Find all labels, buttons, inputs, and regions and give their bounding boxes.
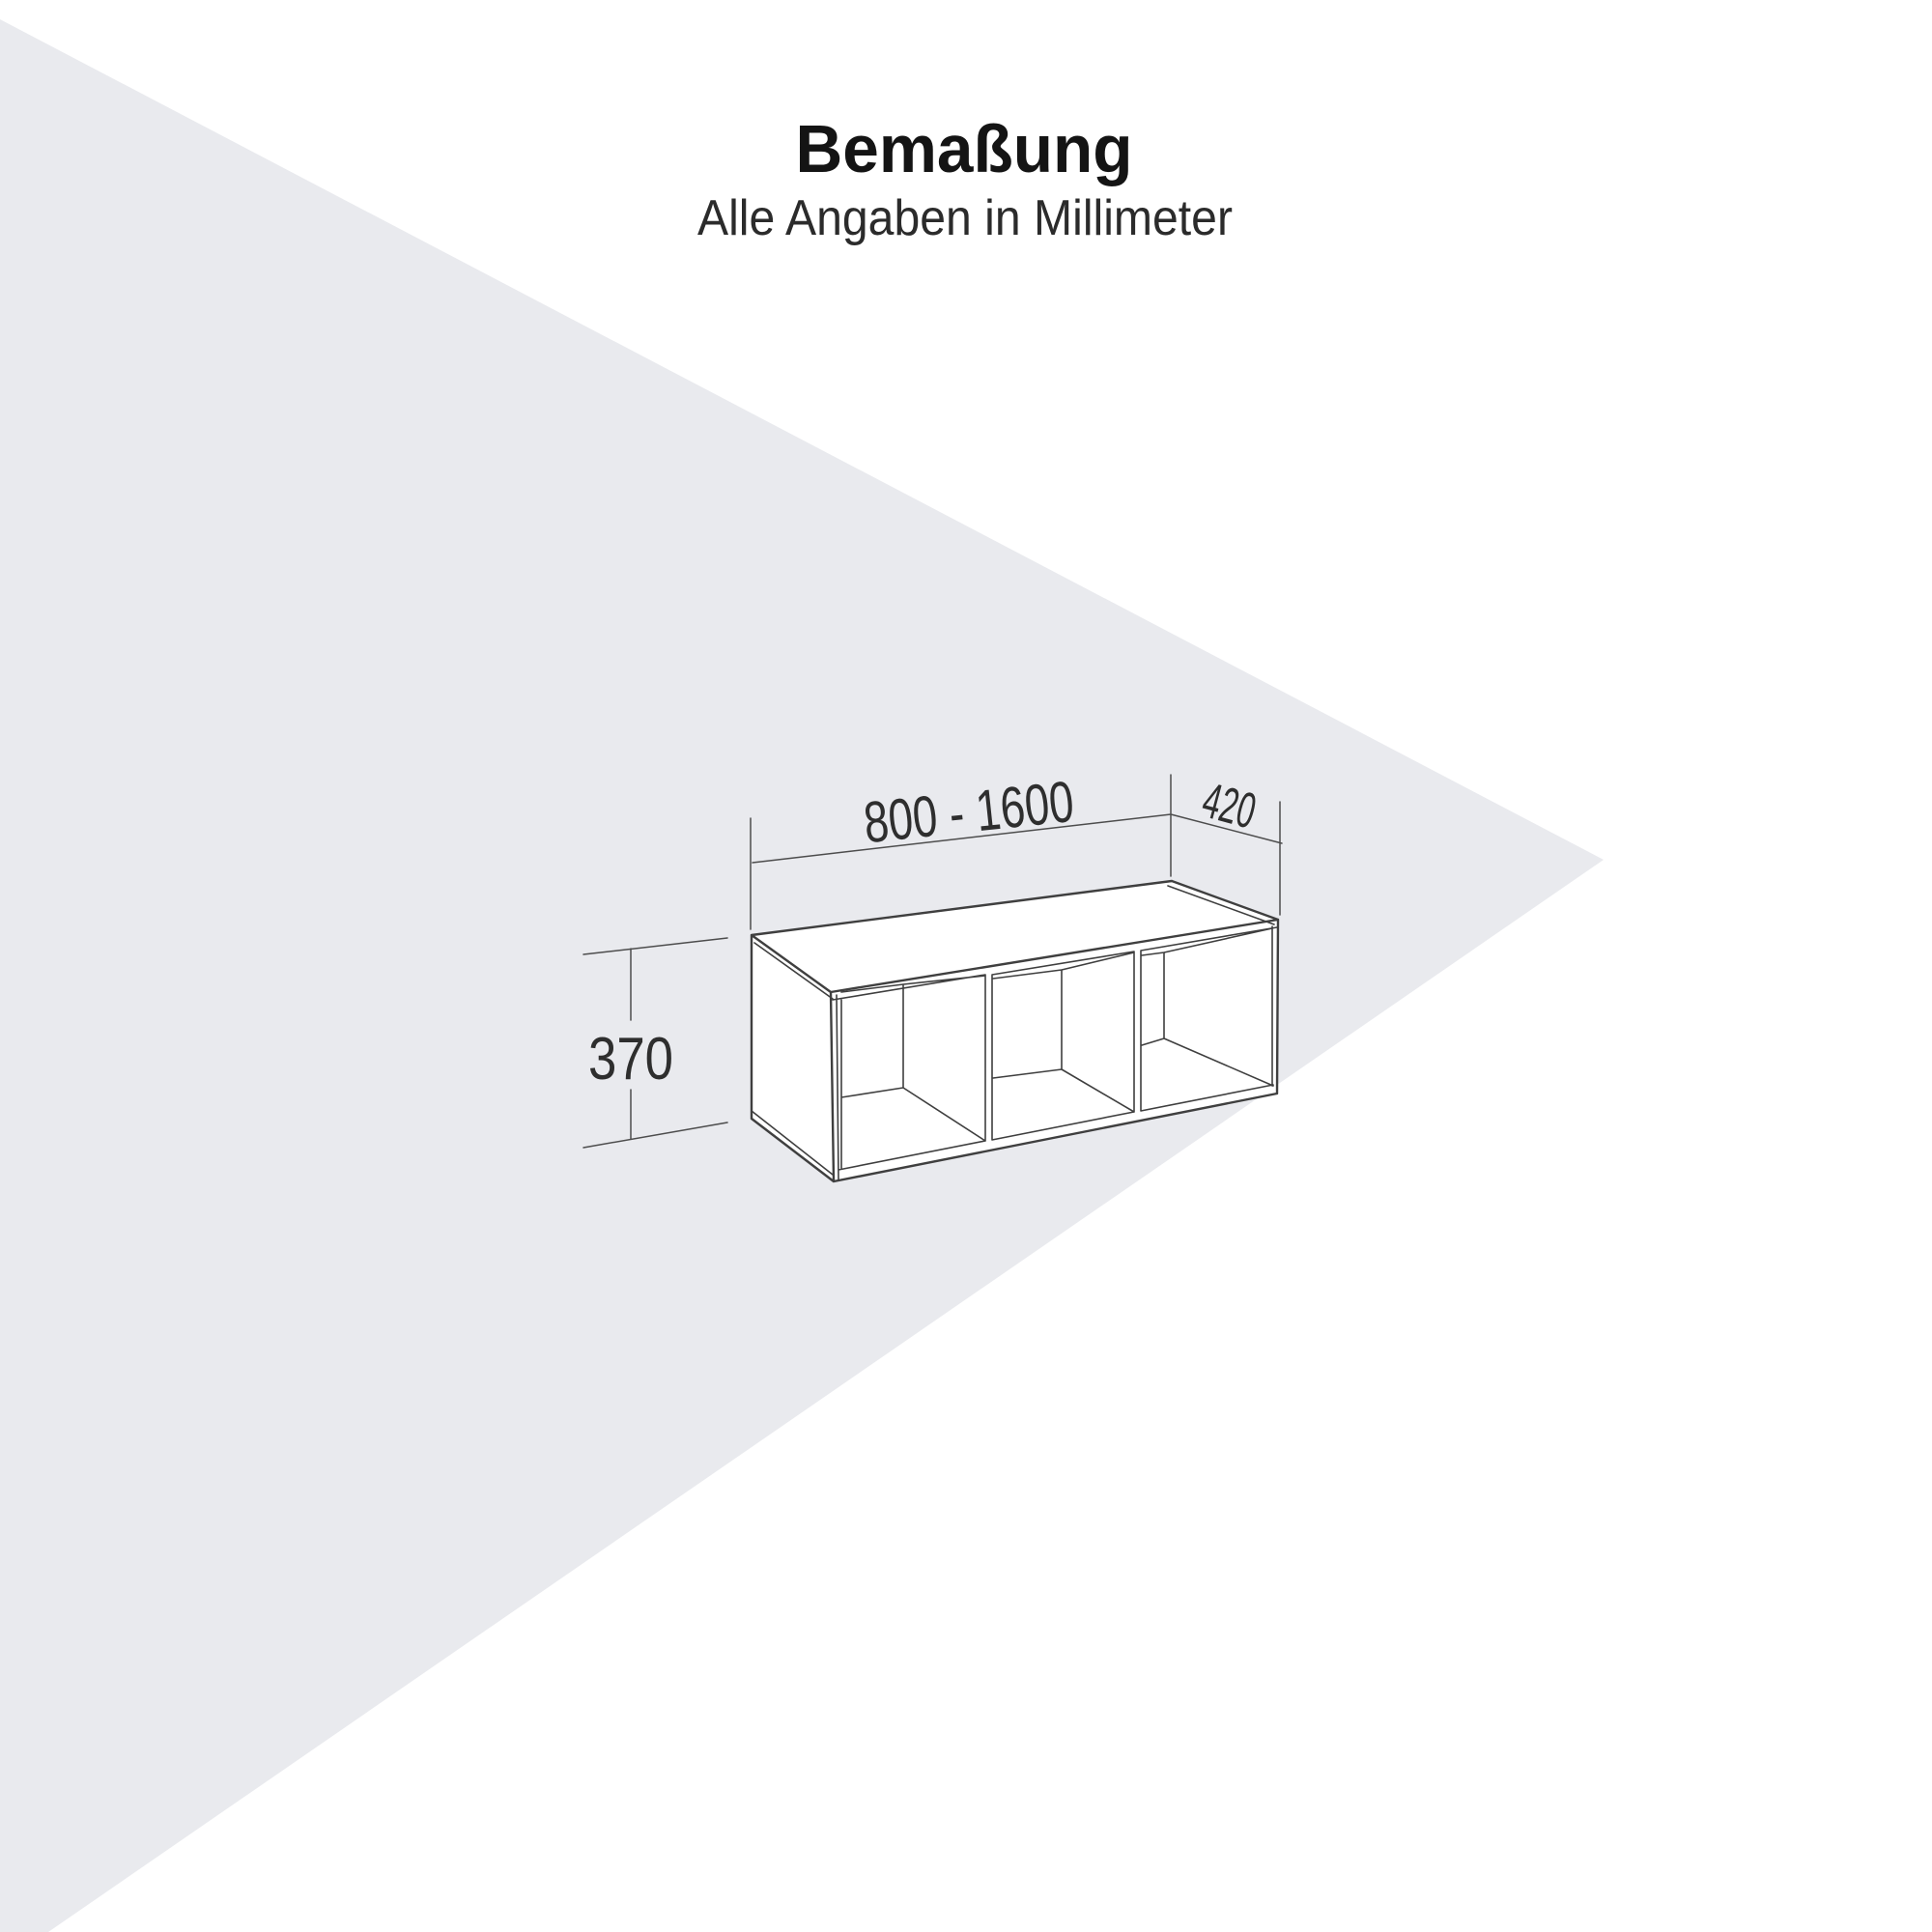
page-title: Bemaßung <box>796 111 1133 186</box>
height-dimension-label: 370 <box>588 1026 673 1093</box>
dimension-diagram: Bemaßung Alle Angaben in Millimeter 800 … <box>0 0 1932 1932</box>
page-subtitle: Alle Angaben in Millimeter <box>697 190 1233 246</box>
dimension-sheet: Bemaßung Alle Angaben in Millimeter 800 … <box>0 0 1932 1932</box>
